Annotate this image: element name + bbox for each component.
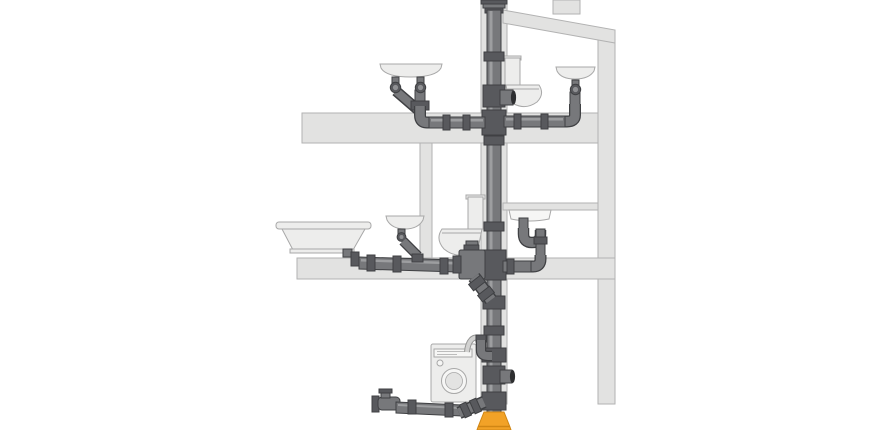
bathtub [276,222,371,253]
sewer-adapter-bell [477,412,511,430]
diagram-svg [0,0,870,430]
toilet-connector [459,250,485,279]
pipe-coupling [463,115,470,130]
branch-pipe [504,116,565,127]
upper-washbasin-double [380,64,442,77]
branch-pipe [429,117,485,128]
kitchen-trap [503,218,547,274]
pipe-coupling [541,114,548,129]
pipe-coupling [351,252,359,266]
interior-wall [420,143,432,259]
socket-opening [511,91,516,105]
pipe-coupling [507,259,514,274]
pipe-coupling [408,400,416,414]
roof [503,10,615,43]
middle-washbasin [386,216,424,229]
roof-step [553,0,580,14]
upper-cross-fitting [482,110,506,135]
pipe-coupling [412,254,423,262]
pipe-coupling [484,52,504,61]
pipe-coupling [443,115,450,130]
upper-washbasin-right [556,67,595,79]
pipe-coupling [534,237,547,244]
pipe-coupling [484,136,504,145]
middle-cross-fitting [482,250,506,280]
pipe-coupling [514,114,521,129]
drainage-diagram [0,0,870,430]
pipe-coupling [440,258,448,274]
pipe-coupling [484,222,504,231]
pipe-coupling [484,326,504,335]
cleanout-cap [379,389,392,393]
sewer-adapter [477,412,511,430]
pipe-coupling [445,403,453,417]
pipe-coupling [393,256,401,272]
washing-machine [431,344,476,402]
kitchen-sink [503,203,598,221]
pipe-coupling [367,255,375,271]
socket-opening [510,370,515,383]
vent-cap [481,0,507,4]
fixtures [276,56,598,402]
pipe-coupling [453,256,461,273]
washer-dial [437,360,443,366]
building-structure [297,0,615,404]
right-wall [598,30,615,404]
vent-cap [483,4,505,8]
